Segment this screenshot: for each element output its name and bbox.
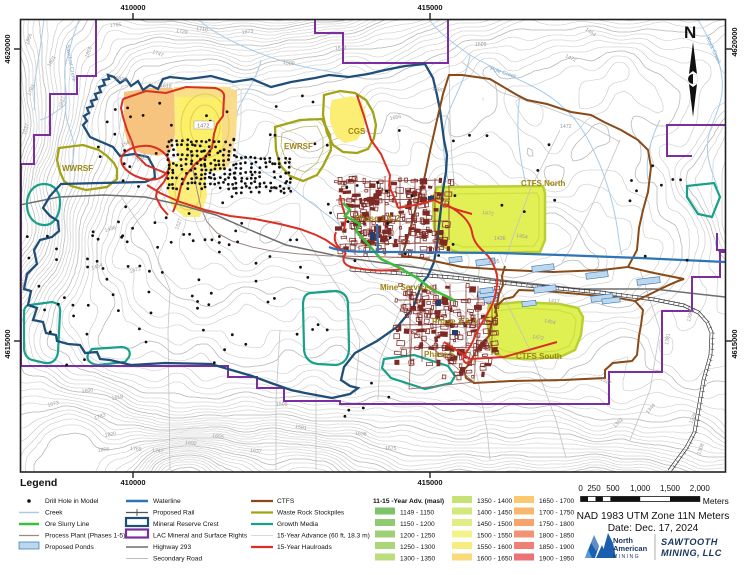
svg-text:Process Plant (Phases 1-5): Process Plant (Phases 1-5) [45, 533, 125, 540]
svg-text:1550 - 1600: 1550 - 1600 [477, 544, 513, 551]
svg-text:Drill Hole in Model: Drill Hole in Model [45, 498, 99, 505]
svg-text:11-15 -Year Adv. (masl): 11-15 -Year Adv. (masl) [373, 498, 444, 505]
svg-text:1850 - 1900: 1850 - 1900 [539, 544, 575, 551]
svg-text:1395: 1395 [488, 259, 500, 265]
svg-text:1350 - 1400: 1350 - 1400 [477, 498, 513, 505]
svg-text:American: American [613, 544, 648, 553]
svg-text:EWRSF: EWRSF [284, 142, 313, 151]
svg-text:15-Year Advance (60 ft, 18.3 m: 15-Year Advance (60 ft, 18.3 m) [277, 533, 370, 540]
svg-text:1436: 1436 [494, 236, 506, 242]
svg-text:Growth Media: Growth Media [277, 521, 318, 528]
svg-text:1149 - 1150: 1149 - 1150 [400, 510, 435, 517]
svg-text:1150 - 1200: 1150 - 1200 [400, 521, 435, 528]
svg-text:1675: 1675 [385, 446, 397, 452]
svg-text:CTFS North: CTFS North [521, 179, 566, 188]
svg-text:1509: 1509 [475, 42, 487, 48]
svg-text:1300 - 1350: 1300 - 1350 [400, 556, 436, 563]
svg-text:0: 0 [578, 484, 583, 493]
svg-text:1800 - 1850: 1800 - 1850 [539, 533, 575, 540]
svg-text:Phase 1 & 2: Phase 1 & 2 [355, 214, 400, 223]
svg-text:1,000: 1,000 [630, 484, 651, 493]
svg-text:LAC Mineral and Surface Rights: LAC Mineral and Surface Rights [153, 533, 248, 540]
svg-text:Secondary Road: Secondary Road [153, 556, 202, 563]
svg-text:NAD 1983 UTM Zone 11N Meters: NAD 1983 UTM Zone 11N Meters [577, 511, 730, 522]
svg-text:Highway 293: Highway 293 [153, 544, 191, 551]
svg-text:4620000: 4620000 [730, 27, 739, 56]
svg-text:1638: 1638 [355, 431, 367, 438]
svg-text:1400 - 1450: 1400 - 1450 [477, 510, 513, 517]
svg-text:1900 - 1950: 1900 - 1950 [539, 556, 575, 563]
svg-text:Phase 3 & 4: Phase 3 & 4 [432, 317, 477, 326]
svg-text:MINING: MINING [613, 554, 640, 560]
svg-text:1472: 1472 [197, 124, 209, 130]
svg-text:Proposed Rail: Proposed Rail [153, 510, 195, 517]
svg-text:1,500: 1,500 [660, 484, 681, 493]
svg-text:CTFS South: CTFS South [516, 352, 562, 361]
svg-text:415000: 415000 [417, 3, 442, 12]
svg-text:4620000: 4620000 [3, 34, 12, 63]
svg-text:1500 - 1550: 1500 - 1550 [477, 533, 513, 540]
svg-text:Date: Dec. 17, 2024: Date: Dec. 17, 2024 [608, 523, 699, 534]
svg-text:1700 - 1750: 1700 - 1750 [539, 510, 575, 517]
svg-text:500: 500 [606, 484, 620, 493]
svg-text:410000: 410000 [120, 3, 145, 12]
svg-text:1637: 1637 [250, 448, 262, 455]
svg-text:15-Year Haulroads: 15-Year Haulroads [277, 544, 332, 551]
svg-text:4615000: 4615000 [3, 329, 12, 358]
svg-text:MINING, LLC: MINING, LLC [661, 548, 722, 558]
svg-text:1381: 1381 [525, 283, 537, 289]
svg-text:415000: 415000 [417, 478, 442, 487]
svg-text:1417: 1417 [548, 298, 560, 305]
svg-text:1509: 1509 [276, 402, 288, 408]
svg-text:1673: 1673 [335, 45, 347, 52]
svg-text:1692: 1692 [185, 440, 197, 447]
svg-text:4615000: 4615000 [730, 329, 739, 358]
svg-text:1250 - 1300: 1250 - 1300 [400, 544, 436, 551]
svg-text:1747: 1747 [152, 448, 164, 455]
svg-text:Proposed Ponds: Proposed Ponds [45, 544, 94, 551]
svg-text:Legend: Legend [20, 477, 57, 489]
svg-text:SAWTOOTH: SAWTOOTH [661, 537, 718, 547]
svg-text:250: 250 [587, 484, 601, 493]
svg-text:1472: 1472 [560, 124, 572, 130]
svg-text:2,000: 2,000 [690, 484, 711, 493]
svg-text:CGS: CGS [348, 127, 366, 136]
svg-text:Meters: Meters [703, 496, 729, 506]
svg-text:Ore Slurry Line: Ore Slurry Line [45, 521, 90, 528]
svg-text:Mineral Reserve Crest: Mineral Reserve Crest [153, 521, 219, 528]
svg-text:N: N [684, 23, 696, 42]
svg-text:1450 - 1500: 1450 - 1500 [477, 521, 513, 528]
svg-text:WWRSF: WWRSF [62, 164, 93, 173]
svg-text:1765: 1765 [110, 22, 122, 29]
svg-text:Phase 5: Phase 5 [424, 350, 455, 359]
svg-text:1650 - 1700: 1650 - 1700 [539, 498, 575, 505]
svg-text:1618: 1618 [160, 83, 172, 90]
svg-text:CTFS: CTFS [277, 498, 295, 505]
svg-text:Waste Rock Stockpiles: Waste Rock Stockpiles [277, 510, 345, 517]
svg-text:1765: 1765 [130, 446, 142, 453]
svg-text:1200 - 1250: 1200 - 1250 [400, 533, 436, 540]
svg-text:1600 - 1650: 1600 - 1650 [477, 556, 513, 563]
svg-text:1750 - 1800: 1750 - 1800 [539, 521, 575, 528]
svg-text:Mine Services: Mine Services [380, 283, 434, 292]
svg-text:Waterline: Waterline [153, 498, 181, 505]
svg-text:410000: 410000 [120, 478, 145, 487]
svg-text:Creek: Creek [45, 510, 63, 517]
svg-text:1509: 1509 [283, 60, 295, 67]
